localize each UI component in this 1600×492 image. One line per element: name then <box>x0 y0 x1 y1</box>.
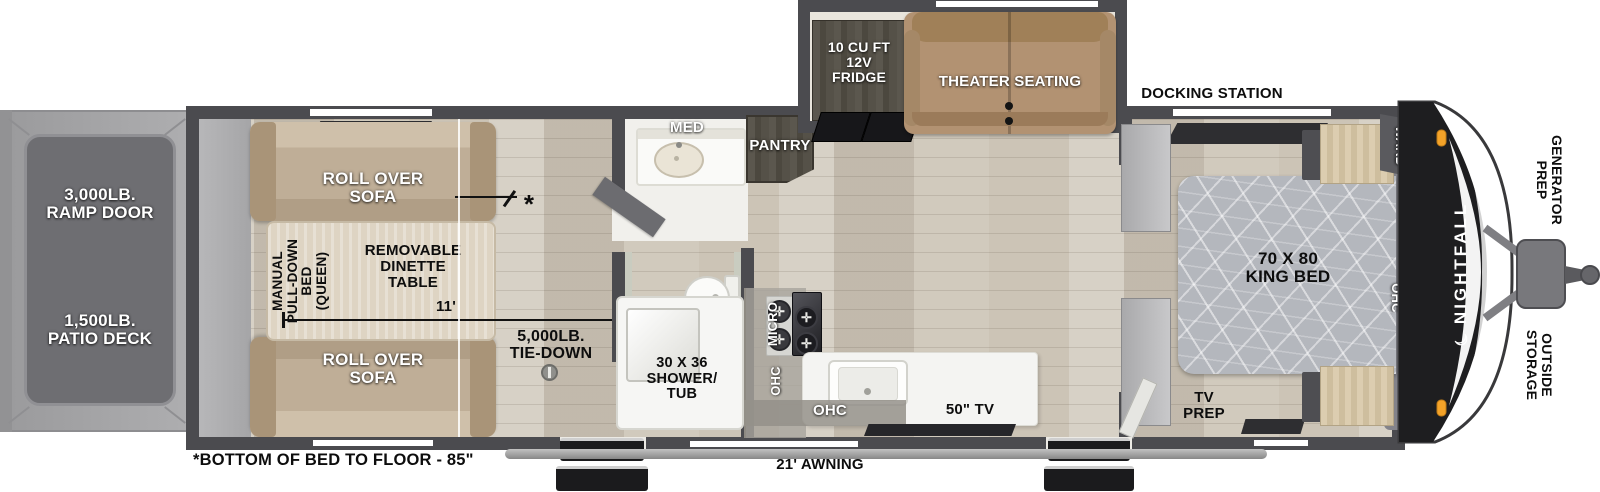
dim-tick-left <box>282 312 285 328</box>
docking-station-label: DOCKING STATION <box>1126 86 1298 102</box>
bed-height-asterisk: * <box>518 190 540 218</box>
garage-top-window-sill <box>310 109 432 116</box>
awning-label: 21' AWNING <box>740 457 900 473</box>
micro-label: MICRO <box>766 294 786 354</box>
nightstand-cabinet-dark <box>1302 372 1322 422</box>
bedroom-top-window-sill <box>1173 109 1331 116</box>
entry-steps <box>556 438 648 490</box>
garage-length-dim-label: 11' <box>408 299 456 315</box>
vanity-faucet <box>676 142 682 148</box>
tv-prep-label: TV PREP <box>1172 390 1236 422</box>
entry-steps <box>1044 438 1134 490</box>
cupholder-dot <box>1005 102 1013 110</box>
kitchen-bottom-window-sill <box>690 441 858 447</box>
bedroom-bottom-window <box>1241 419 1305 434</box>
propane-cover <box>1517 240 1565 308</box>
brand-name: NIGHTFALL <box>1451 202 1470 324</box>
marker-light-icon <box>1437 400 1446 416</box>
theater-seating-label: THEATER SEATING <box>922 74 1098 90</box>
ohc-bottom-label: OHC <box>800 403 860 419</box>
tv-50-label: 50" TV <box>930 402 1010 418</box>
bedroom-bottom-window-sill <box>1254 440 1308 446</box>
sink-faucet <box>864 388 871 395</box>
burner-icon: ✛ <box>795 306 818 329</box>
roll-over-sofa-top-label: ROLL OVER SOFA <box>283 170 463 207</box>
ohc-left-label: OHC <box>769 358 787 404</box>
sofa-arm-left <box>250 122 276 221</box>
ramp-door-panel <box>24 134 176 406</box>
bed-height-note: *BOTTOM OF BED TO FLOOR - 85" <box>193 452 503 470</box>
tv-50-unit <box>864 424 1016 436</box>
hitch-ball <box>1581 266 1599 284</box>
ramp-door-label: 3,000LB. RAMP DOOR <box>28 186 172 223</box>
fridge-label: 10 CU FT 12V FRIDGE <box>812 40 906 85</box>
outside-storage-label: OUTSIDE STORAGE <box>1518 313 1554 417</box>
nightstand-cabinet-dark <box>1302 130 1322 180</box>
patio-deck-left-rail <box>0 110 12 432</box>
roll-over-sofa-bottom-label: ROLL OVER SOFA <box>283 351 463 388</box>
cupholder-dot <box>1005 117 1013 125</box>
bedroom-divider-panel-top <box>1121 124 1171 232</box>
bath-vanity <box>636 128 746 186</box>
brand-logo: ☾NIGHTFALL <box>1434 179 1462 369</box>
garage-length-dim-line <box>283 319 621 321</box>
marker-light-icon <box>1437 130 1446 146</box>
tie-down-anchor-icon <box>541 364 558 381</box>
front-cap-and-hitch <box>1393 88 1600 458</box>
floorplan-canvas: 3,000LB. RAMP DOOR 1,500LB. PATIO DECK R… <box>0 0 1600 492</box>
slideout-window-sill <box>936 1 1098 7</box>
pulldown-bed-label: MANUAL PULL-DOWN BED (QUEEN) <box>271 216 337 346</box>
garage-slide-edge-line <box>458 119 460 437</box>
sofa-arm-left <box>250 337 276 437</box>
garage-rear-floor <box>199 119 251 437</box>
tie-down-label: 5,000LB. TIE-DOWN <box>492 328 610 363</box>
king-bed-label: 70 X 80 KING BED <box>1218 250 1358 287</box>
shower-tub-label: 30 X 36 SHOWER/ TUB <box>626 356 738 403</box>
pantry-label: PANTRY <box>742 138 818 154</box>
nightstand-bottom <box>1320 366 1394 426</box>
shower-tub: 30 X 36 SHOWER/ TUB <box>616 296 744 430</box>
generator-prep-label: GENERATOR PREP <box>1528 130 1564 230</box>
theater-seating: THEATER SEATING <box>904 12 1116 134</box>
sofa-arm-right <box>470 122 496 221</box>
med-cabinet-label: MED <box>652 120 722 136</box>
garage-bottom-window-sill <box>313 440 433 446</box>
patio-deck-label: 1,500LB. PATIO DECK <box>28 312 172 349</box>
